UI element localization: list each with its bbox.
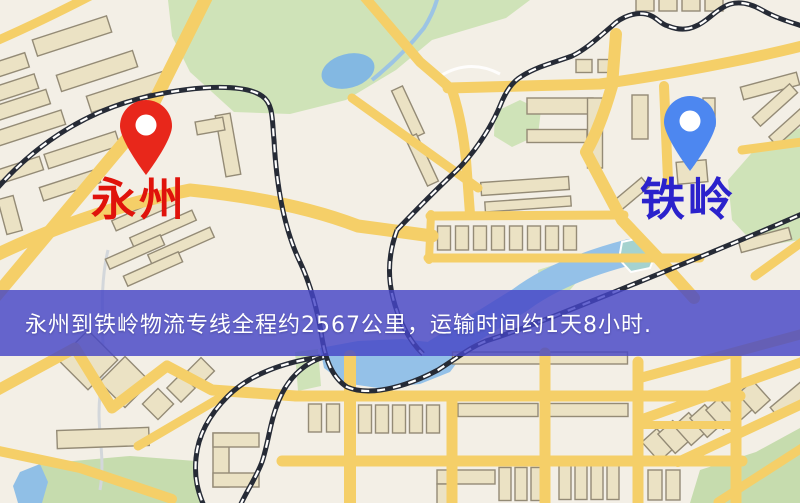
- destination-city-label: 铁岭: [640, 177, 736, 222]
- pin-hole: [680, 111, 701, 132]
- route-info-banner: 永州到铁岭物流专线全程约2567公里，运输时间约1天8小时.: [0, 290, 800, 356]
- destination-pin-icon[interactable]: [660, 95, 720, 173]
- pin-shape: [120, 100, 172, 175]
- origin-city-label: 永州: [91, 177, 187, 222]
- map-canvas[interactable]: 永州 铁岭 永州到铁岭物流专线全程约2567公里，运输时间约1天8小时.: [0, 0, 800, 503]
- map-base-layer: [0, 0, 800, 503]
- pin-hole: [136, 115, 157, 136]
- pin-shape: [664, 96, 716, 171]
- route-info-text: 永州到铁岭物流专线全程约2567公里，运输时间约1天8小时.: [0, 307, 652, 339]
- origin-pin-icon[interactable]: [116, 99, 176, 177]
